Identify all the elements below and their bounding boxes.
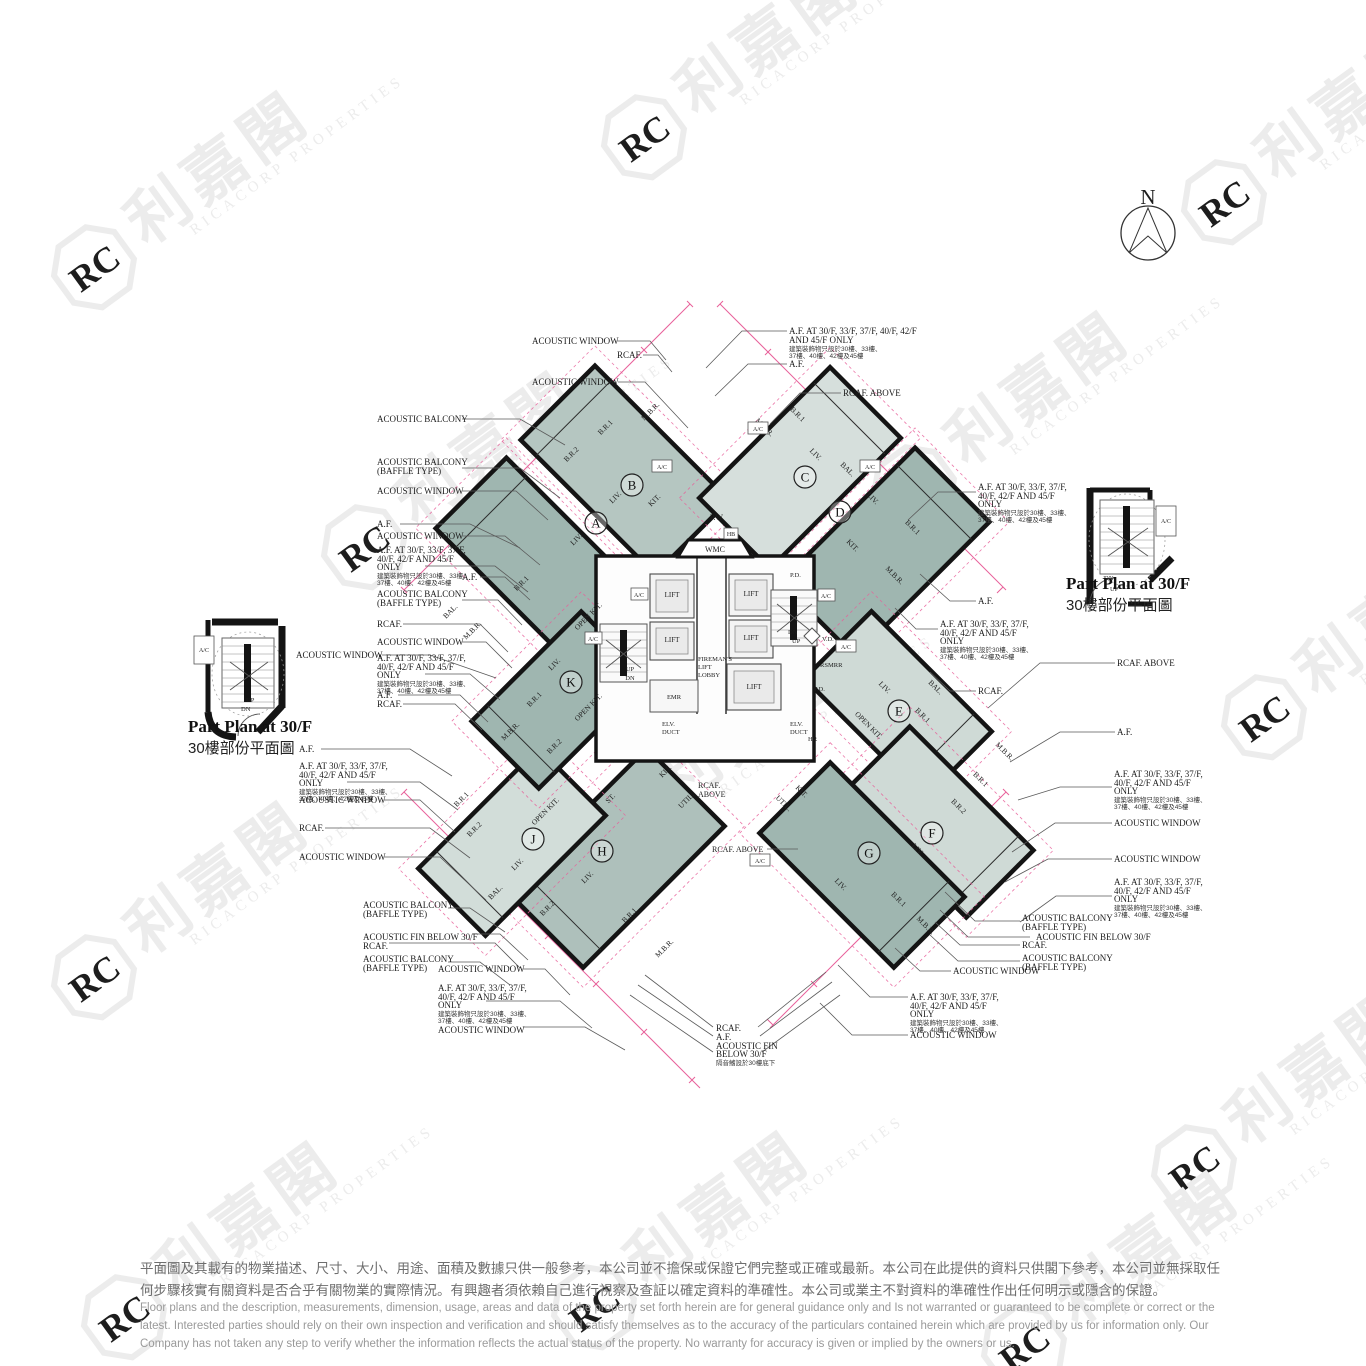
ac-label: A/C: [634, 593, 644, 599]
unit-letter-text: K: [566, 675, 576, 690]
unit-letter-k: K: [560, 671, 582, 693]
part-plan-title: Part Plan at 30/F: [188, 717, 312, 736]
ac-label: A/C: [841, 645, 851, 651]
callout-af-floors: ONLY: [1114, 894, 1139, 904]
callout-acoustic-fin: ACOUSTIC FIN BELOW 30/F: [1036, 932, 1151, 942]
callout-acoustic-window: ACOUSTIC WINDOW: [299, 852, 386, 862]
callout-af-floors-zh: 建築裝飾物只設於30樓、33樓、: [377, 679, 469, 688]
lift-label: LIFT: [744, 634, 760, 642]
callout-acoustic-window: ACOUSTIC WINDOW: [532, 377, 619, 387]
callout-af: A.F.: [377, 519, 392, 529]
disclaimer-english: Floor plans and the description, measure…: [140, 1300, 1234, 1353]
disclaimer-en-line2: latest. Interested parties should rely o…: [140, 1318, 1234, 1336]
ac-label: A/C: [657, 465, 667, 471]
callout-af-floors-zh: 建築裝飾物只設於30樓、33樓、: [1114, 903, 1206, 912]
callout-baffle-type: (BAFFLE TYPE): [377, 466, 441, 476]
part-plan-right: A/C DN UP Part Plan at 30/F 30樓部份平面圖: [1066, 488, 1190, 614]
disclaimer-chinese: 平面圖及其載有的物業描述、尺寸、大小、用途、面積及數據只供一般參考，本公司並不擔…: [140, 1258, 1234, 1301]
ac-label: A/C: [821, 594, 831, 600]
fireman-lobby-label: FIREMAN'S: [698, 656, 732, 663]
callout-acoustic-fin-zh: 隔音鰭設於30樓底下: [716, 1058, 776, 1067]
pd-label: P.D.: [814, 686, 825, 693]
callout-af-floors-zh: 37樓、40樓、42樓及45樓: [1114, 802, 1189, 811]
callout-af-floors: ONLY: [377, 562, 402, 572]
callout-rcaf: RCAF.: [377, 619, 402, 629]
callout-rcaf-above: RCAF. ABOVE: [843, 388, 901, 398]
unit-letter-text: G: [864, 846, 873, 861]
unit-letter-e: E: [888, 700, 910, 722]
fireman-lift-label: LIFT: [747, 683, 763, 691]
unit-letter-text: D: [835, 505, 844, 520]
disclaimer-en-line3: Company has not taken any step to verify…: [140, 1336, 1234, 1354]
rsmrr-label: RSMRR: [820, 662, 843, 669]
unit-letter-text: H: [597, 844, 606, 859]
callout-af-floors-zh: 37樓、40樓、42樓及45樓: [1114, 910, 1189, 919]
callout-rcaf-above: RCAF. ABOVE: [1117, 658, 1175, 668]
rcaf-above-note: RCAF.: [698, 781, 720, 790]
part-plan-subtitle: 30樓部份平面圖: [1066, 597, 1173, 614]
callout-af-floors-zh: 建築裝飾物只設於30樓、33樓、: [978, 508, 1070, 517]
callout-af-floors-zh: 建築裝飾物只設於30樓、33樓、: [1114, 795, 1206, 804]
callout-acoustic-window: ACOUSTIC WINDOW: [1114, 818, 1201, 828]
elv-duct-label: ELV.: [790, 721, 803, 728]
up-label: UP: [246, 697, 255, 704]
up-label: UP: [626, 666, 635, 673]
room-label: M.B.R.: [461, 619, 483, 641]
callout-rcaf: RCAF.: [363, 941, 388, 951]
lift-label: LIFT: [665, 636, 681, 644]
rcaf-above-note: ABOVE: [698, 790, 726, 799]
unit-letter-d: D: [829, 501, 851, 523]
callout-acoustic-window: ACOUSTIC WINDOW: [377, 531, 464, 541]
unit-letter-text: A: [591, 516, 601, 531]
unit-letter-h: H: [591, 840, 613, 862]
callout-af-floors-zh: 建築裝飾物只設於30樓、33樓、: [377, 571, 469, 580]
elv-duct-label: DUCT: [790, 729, 808, 736]
unit-letter-b: B: [621, 474, 643, 496]
ac-label: A/C: [755, 859, 765, 865]
callout-acoustic-window: ACOUSTIC WINDOW: [299, 795, 386, 805]
callout-acoustic-window: ACOUSTIC WINDOW: [910, 1030, 997, 1040]
callout-acoustic-balcony: ACOUSTIC BALCONY: [377, 414, 468, 424]
up-label: UP: [792, 638, 801, 645]
callout-af-floors-zh: 建築裝飾物只設於30樓、33樓、: [438, 1009, 530, 1018]
callout-rcaf: RCAF.: [1022, 940, 1047, 950]
callout-af: A.F.: [462, 572, 477, 582]
callout-af-floors: ONLY: [1114, 786, 1139, 796]
hr-label: HR: [808, 736, 818, 743]
pw-label: P.W.: [710, 513, 724, 522]
callout-af-floors-zh: 37樓、40樓、42樓及45樓: [438, 1016, 513, 1025]
callout-rcaf: RCAF.: [617, 350, 642, 360]
callout-af-floors-zh: 建築裝飾物只設於30樓、33樓、: [910, 1018, 1002, 1027]
callout-acoustic-window: ACOUSTIC WINDOW: [532, 336, 619, 346]
floor-plan-page: RC 利嘉閣RICACORP PROPERTIES 利嘉閣RICACORP PR…: [0, 0, 1366, 1366]
fireman-lobby-label: LIFT: [698, 664, 712, 671]
emr-label: EMR: [667, 694, 682, 701]
callout-acoustic-window: ACOUSTIC WINDOW: [377, 637, 464, 647]
callout-baffle-type: (BAFFLE TYPE): [363, 909, 427, 919]
unit-letter-g: G: [858, 842, 880, 864]
unit-letter-text: B: [628, 478, 637, 493]
ac-label: A/C: [865, 465, 875, 471]
part-plan-subtitle: 30樓部份平面圖: [188, 740, 295, 757]
callout-baffle-type: (BAFFLE TYPE): [1022, 922, 1086, 932]
callout-af: A.F.: [789, 359, 804, 369]
callout-af-floors: ONLY: [299, 778, 324, 788]
disclaimer-en-line1: Floor plans and the description, measure…: [140, 1300, 1234, 1318]
callout-af-floors-zh: 建築裝飾物只設於30樓、33樓、: [940, 645, 1032, 654]
floor-plan-drawing: LIFT LIFT LIFT LIFT LIFT FIREMAN'S LIFT …: [0, 0, 1366, 1366]
unit-letter-c: C: [794, 466, 816, 488]
callout-af-floors: ONLY: [377, 670, 402, 680]
lift-label: LIFT: [665, 591, 681, 599]
room-label: M.B.R.: [653, 937, 675, 959]
callout-acoustic-window: ACOUSTIC WINDOW: [377, 486, 464, 496]
callout-af-floors: ONLY: [438, 1000, 463, 1010]
callout-rcaf: RCAF.: [299, 823, 324, 833]
dn-label: DN: [788, 629, 798, 636]
callout-acoustic-window: ACOUSTIC WINDOW: [1114, 854, 1201, 864]
callout-rcaf: RCAF.: [377, 699, 402, 709]
room-label: B.R.1: [971, 770, 990, 789]
disclaimer-zh-line2: 何步驟核實有關資料是否合乎有關物業的實際情況。有興趣者須依賴自己進行視察及查証以…: [140, 1280, 1234, 1302]
callout-af: A.F.: [1117, 727, 1132, 737]
hb-label: HB: [727, 532, 735, 538]
unit-letter-j: J: [522, 828, 544, 850]
callout-af-floors: ONLY: [910, 1009, 935, 1019]
wmc-label: WMC: [705, 545, 725, 554]
fireman-lobby-label: LOBBY: [698, 672, 720, 679]
callout-af-floors: AND 45/F ONLY: [789, 335, 854, 345]
callout-af-floors-zh: 37樓、40樓、42樓及45樓: [377, 578, 452, 587]
unit-letter-text: J: [530, 832, 535, 847]
callout-acoustic-window: ACOUSTIC WINDOW: [296, 650, 383, 660]
callout-af-floors: ONLY: [978, 499, 1003, 509]
room-label: BAL.: [441, 602, 459, 620]
unit-letter-text: F: [928, 826, 935, 841]
disclaimer-zh-line1: 平面圖及其載有的物業描述、尺寸、大小、用途、面積及數據只供一般參考，本公司並不擔…: [140, 1258, 1234, 1280]
callout-af-floors-zh: 37樓、40樓、42樓及45樓: [978, 515, 1053, 524]
lift-label: LIFT: [744, 590, 760, 598]
callout-baffle-type: (BAFFLE TYPE): [363, 963, 427, 973]
part-plan-title: Part Plan at 30/F: [1066, 574, 1190, 593]
callout-rcaf: RCAF.: [978, 686, 1003, 696]
callout-acoustic-window: ACOUSTIC WINDOW: [438, 1025, 525, 1035]
elv-duct-label: DUCT: [662, 729, 680, 736]
vd-label: V.D.: [822, 636, 834, 643]
pd-label: P.D.: [790, 572, 801, 579]
ac-label: A/C: [1161, 519, 1171, 525]
callout-acoustic-fin: BELOW 30/F: [716, 1049, 767, 1059]
unit-letter-f: F: [921, 822, 943, 844]
room-label: M.B.R.: [994, 740, 1016, 762]
compass-needle-icon: [1129, 208, 1167, 253]
callout-af: A.F.: [978, 596, 993, 606]
unit-letter-text: E: [895, 704, 903, 719]
callout-acoustic-window: ACOUSTIC WINDOW: [438, 964, 525, 974]
callout-af: A.F.: [299, 744, 314, 754]
dn-label: DN: [241, 706, 251, 713]
callout-af-floors-zh: 建築裝飾物只設於30樓、33樓、: [789, 344, 881, 353]
rcaf-above-note: RCAF. ABOVE: [712, 845, 763, 854]
ac-label: A/C: [588, 637, 598, 643]
part-plan-left: A/C UP DN Part Plan at 30/F 30樓部份平面圖: [188, 620, 312, 757]
north-arrow: N: [1121, 185, 1175, 260]
ac-label: A/C: [753, 427, 763, 433]
dn-label: DN: [625, 675, 635, 682]
callout-baffle-type: (BAFFLE TYPE): [377, 598, 441, 608]
elv-duct-label: ELV.: [662, 721, 675, 728]
unit-letter-text: C: [801, 470, 810, 485]
unit-letter-a: A: [585, 512, 607, 534]
callout-af-floors: ONLY: [940, 636, 965, 646]
callout-af-floors-zh: 37樓、40樓、42樓及45樓: [940, 652, 1015, 661]
ac-label: A/C: [199, 648, 209, 654]
callout-acoustic-window: ACOUSTIC WINDOW: [953, 966, 1040, 976]
